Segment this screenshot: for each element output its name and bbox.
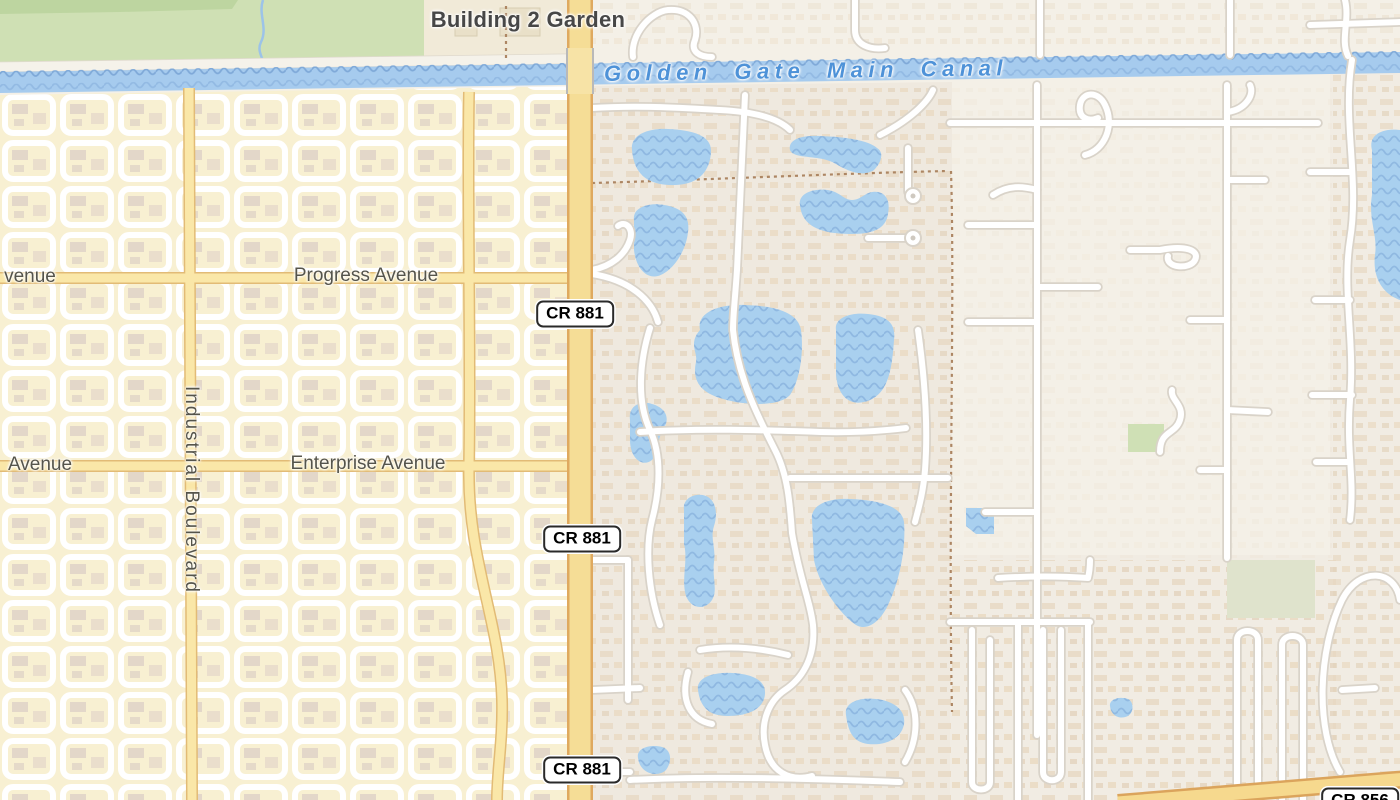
- road-cr881: [567, 0, 593, 800]
- shield-cr881-top: CR 881: [536, 301, 614, 328]
- bridge: [567, 48, 593, 94]
- shield-cr881-bottom: CR 881: [543, 757, 621, 784]
- map-viewport[interactable]: Building 2 Garden Golden Gate Main Canal…: [0, 0, 1400, 800]
- shield-cr881-middle: CR 881: [543, 526, 621, 553]
- shield-cr856: CR 856: [1321, 788, 1399, 800]
- map-render: [0, 0, 1400, 800]
